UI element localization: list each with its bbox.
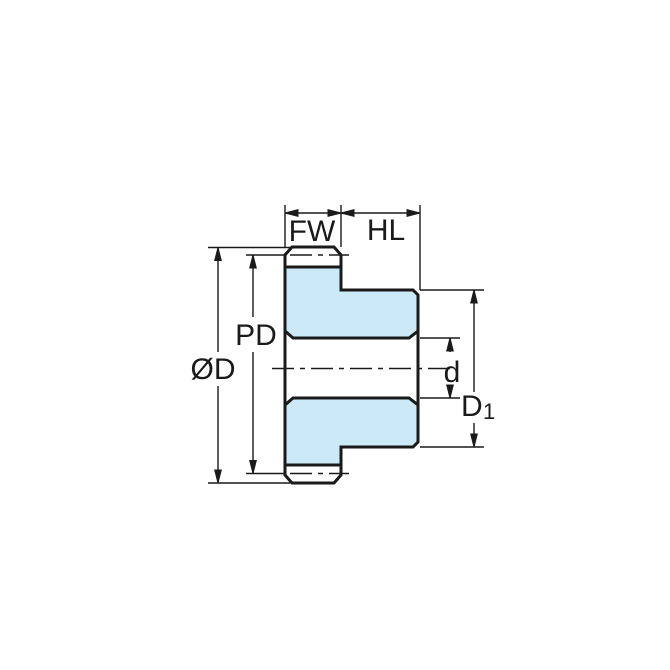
d1-bottom-arrow-icon bbox=[471, 434, 478, 447]
diagram-svg: FW HL PD ØD d D 1 bbox=[0, 0, 670, 670]
gear-body-upper bbox=[285, 267, 418, 338]
hub-diameter-label: D bbox=[461, 390, 483, 423]
hl-left-arrow-icon bbox=[341, 210, 354, 217]
d1-top-arrow-icon bbox=[471, 290, 478, 303]
gear-tooth-top bbox=[285, 247, 341, 267]
outer-diameter-label: ØD bbox=[191, 353, 236, 386]
gear-dimension-diagram: FW HL PD ØD d D 1 bbox=[0, 0, 670, 670]
bore-diameter-label: d bbox=[444, 356, 461, 389]
gear-body-lower bbox=[285, 398, 418, 465]
pitch-diameter-label: PD bbox=[235, 319, 277, 352]
od-top-arrow-icon bbox=[215, 248, 222, 261]
hub-length-label: HL bbox=[367, 214, 405, 247]
gear-body bbox=[285, 247, 418, 483]
pd-bottom-arrow-icon bbox=[250, 461, 257, 474]
hub-diameter-label-subscript: 1 bbox=[483, 399, 495, 424]
face-width-label: FW bbox=[289, 215, 336, 248]
pd-top-arrow-icon bbox=[250, 255, 257, 268]
hl-right-arrow-icon bbox=[407, 210, 420, 217]
od-bottom-arrow-icon bbox=[215, 470, 222, 483]
d-top-arrow-icon bbox=[447, 338, 454, 351]
